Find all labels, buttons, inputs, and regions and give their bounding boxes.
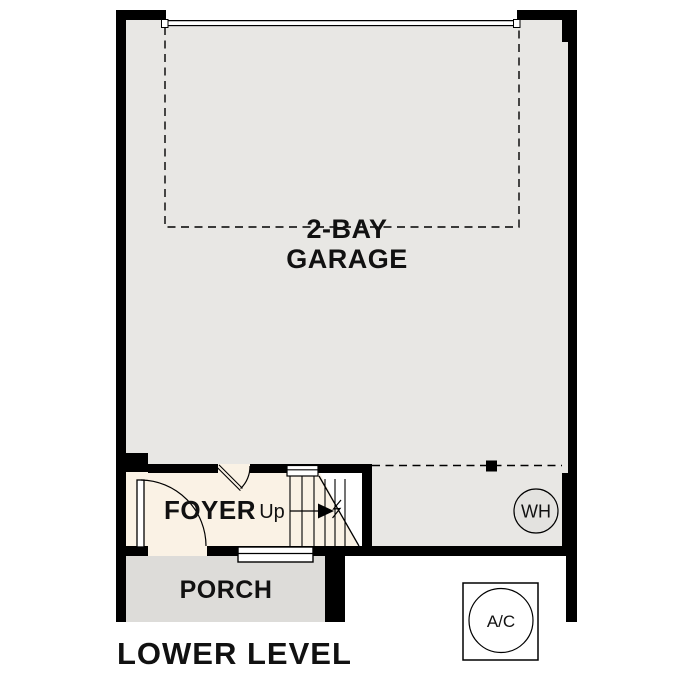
front-door-leaf xyxy=(137,480,144,547)
porch-right-wall xyxy=(325,556,345,622)
garage-door-jamb-left xyxy=(162,20,169,28)
stairs-up-label: Up xyxy=(259,501,285,523)
exterior-wall-right-bottom xyxy=(566,556,577,622)
structural-post xyxy=(486,461,497,472)
floor-plan-page: 2-BAY GARAGE FOYER Up PORCH WH A/C LOWER… xyxy=(0,0,687,687)
front-door-threshold xyxy=(148,546,207,556)
exterior-wall-top-left xyxy=(116,10,166,20)
exterior-wall-left xyxy=(116,10,126,622)
plan-title: LOWER LEVEL xyxy=(117,636,352,671)
exterior-wall-right xyxy=(568,42,577,473)
exterior-wall-right-lower-block xyxy=(562,473,577,556)
ac-unit-label: A/C xyxy=(487,612,515,631)
garage-foyer-wall-step xyxy=(126,453,148,472)
porch-label: PORCH xyxy=(180,576,273,604)
garage-label-line2: GARAGE xyxy=(286,244,408,274)
exterior-wall-top-right xyxy=(517,10,577,20)
garage-label-line1: 2-BAY xyxy=(306,214,387,244)
stair-right-wall xyxy=(362,464,372,556)
stair-top-window xyxy=(287,466,318,477)
exterior-wall-right-upper-block xyxy=(562,20,577,42)
water-heater-label: WH xyxy=(521,502,551,522)
garage-door-jamb-right xyxy=(514,20,521,28)
foyer-label: FOYER xyxy=(164,495,256,525)
stoop-steps xyxy=(238,547,313,562)
floor-plan-svg: 2-BAY GARAGE FOYER Up PORCH WH A/C LOWER… xyxy=(0,0,687,687)
garage-foyer-wall xyxy=(148,464,218,473)
